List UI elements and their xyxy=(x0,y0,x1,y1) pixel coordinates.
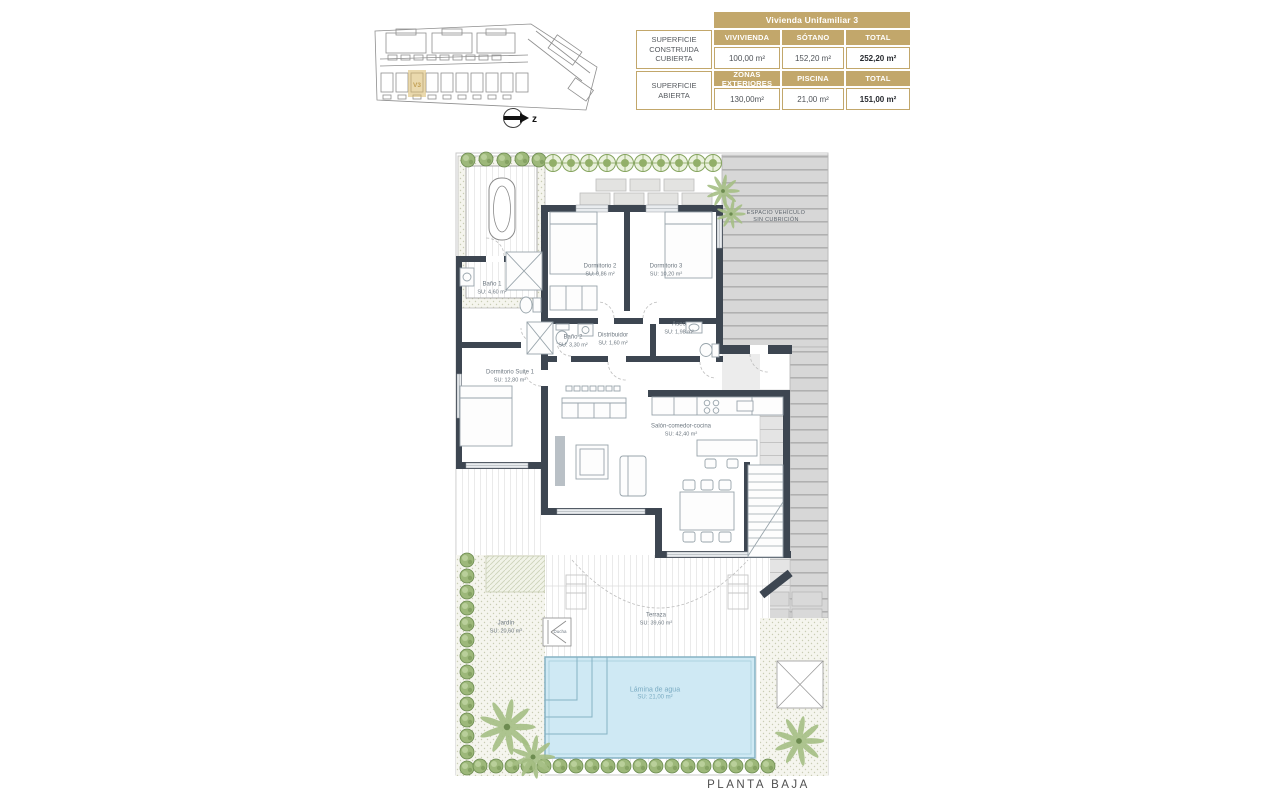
room-label-dormitorio-suite-1: Dormitorio Suite 1SU: 12,80 m² xyxy=(486,370,534,385)
area-summary-table: Vivienda Unifamiliar 3 SUPERFICIE CONSTR… xyxy=(636,12,916,110)
room-label-jardin: JardínSU: 20,60 m² xyxy=(490,621,522,636)
vehicle-area xyxy=(722,155,828,347)
room-label-aseo: AseoSU: 1,98 m² xyxy=(664,322,693,337)
col-header-piscina: PISCINA xyxy=(782,71,844,86)
room-label-distribuidor: DistribuidorSU: 1,60 m² xyxy=(598,333,628,348)
room-label-dormitorio-3: Dormitorio 3SU: 10,20 m² xyxy=(650,264,683,279)
site-plan: V3 xyxy=(375,24,597,110)
room-label-bano-1: Baño 1SU: 4,60 m² xyxy=(477,282,506,297)
row-group-label-construida: SUPERFICIE CONSTRUIDA CUBIERTA xyxy=(636,30,712,69)
room-label-ducha: Ducha xyxy=(553,629,566,635)
north-label: z xyxy=(532,114,537,125)
col-header-total-2: TOTAL xyxy=(846,71,910,86)
floor-plan-page: { "site_plan": { "highlighted_unit": "V3… xyxy=(0,0,1280,800)
value-zonas-exteriores: 130,00m² xyxy=(714,88,780,110)
col-header-total-1: TOTAL xyxy=(846,30,910,45)
room-label-bano-2: Baño 2SU: 3,30 m² xyxy=(558,335,587,350)
value-piscina: 21,00 m² xyxy=(782,88,844,110)
pergola xyxy=(777,661,823,708)
site-highlight-label: V3 xyxy=(413,82,421,89)
col-header-vivienda: VIVIVIENDA xyxy=(714,30,780,45)
value-total-construida: 252,20 m² xyxy=(846,47,910,69)
room-label-espacio-vehiculo: ESPACIO VEHÍCULOSIN CUBRICIÓN xyxy=(747,210,806,224)
col-header-sotano: SÓTANO xyxy=(782,30,844,45)
value-sotano: 152,20 m² xyxy=(782,47,844,69)
room-label-terraza: TerrazaSU: 39,60 m² xyxy=(640,613,672,628)
pool xyxy=(545,657,755,758)
room-label-salon-comedor-cocina: Salón-comedor-cocinaSU: 42,40 m² xyxy=(651,424,711,439)
plan-caption: PLANTA BAJA xyxy=(676,779,841,791)
table-corner-spacer xyxy=(636,12,712,28)
value-total-abierta: 151,00 m² xyxy=(846,88,910,110)
room-label-lamina-de-agua: Lámina de aguaSU: 21,00 m² xyxy=(630,686,680,703)
room-label-dormitorio-2: Dormitorio 2SU: 9,86 m² xyxy=(584,264,617,279)
plan-drawing: V3 z xyxy=(0,0,1280,800)
col-header-zonas-exteriores: ZONAS EXTERIORES xyxy=(714,71,780,86)
table-title: Vivienda Unifamiliar 3 xyxy=(714,12,910,28)
value-vivienda: 100,00 m² xyxy=(714,47,780,69)
north-arrow-icon: z xyxy=(504,109,538,128)
row-group-label-abierta: SUPERFICIE ABIERTA xyxy=(636,71,712,110)
